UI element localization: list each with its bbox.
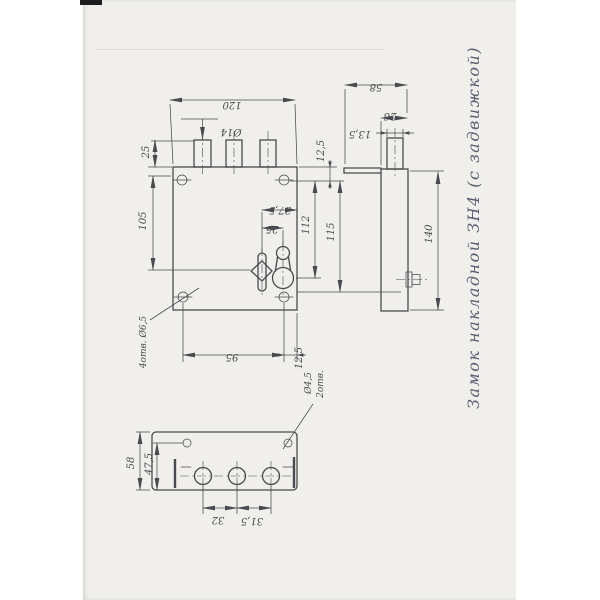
lock-case-side: [381, 169, 408, 311]
dim-13-5: 13,5: [349, 128, 371, 139]
lock-case-bottom: [152, 432, 297, 490]
dim-26: 26: [383, 110, 397, 121]
screw-holes-front: [173, 175, 293, 302]
screw-hole-bottom-left: [183, 439, 191, 447]
front-view: [173, 131, 297, 310]
dim-112: 112: [301, 215, 312, 234]
drawing-title: Замок накладной ЗН4 (с задвижкой): [464, 46, 483, 409]
label-screw-holes: 4отв. Ø6,5: [138, 316, 149, 370]
dim-31-5: 31,5: [241, 515, 263, 526]
spindle-slot: [251, 247, 272, 298]
dim-32: 32: [212, 514, 225, 525]
dim-25-mid: 25: [266, 223, 280, 234]
dim-12-5-bottom: 12,5: [294, 347, 305, 369]
bottom-view: 58 47,5 32 31,5 Ø4,5 2отв.: [126, 370, 326, 526]
dim-115: 115: [326, 222, 337, 241]
label-holes-count: 2отв.: [316, 370, 326, 399]
keyhole: [273, 242, 294, 295]
slide-knob: [396, 272, 428, 287]
dim-58-side: 58: [370, 81, 383, 92]
lock-technical-drawing: 120 Ø14 25 105 37,5 25 1: [0, 0, 600, 600]
dim-140: 140: [424, 224, 435, 244]
dim-58-bottom: 58: [126, 457, 137, 470]
dim-12-5-top: 12,5: [316, 140, 327, 162]
dim-bolt-dia: Ø14: [221, 126, 243, 137]
scanned-drawing-sheet: 120 Ø14 25 105 37,5 25 1: [0, 0, 600, 600]
dim-47-5: 47,5: [144, 453, 155, 476]
dim-25-left: 25: [141, 146, 152, 160]
dim-95: 95: [226, 351, 239, 362]
dim-120: 120: [222, 99, 242, 110]
side-view: 58 26 13,5 140: [344, 81, 444, 311]
lock-case-front: [173, 167, 297, 310]
label-holes-dia: Ø4,5: [303, 372, 314, 395]
dim-105: 105: [138, 211, 149, 230]
dim-37-5: 37,5: [269, 204, 291, 215]
